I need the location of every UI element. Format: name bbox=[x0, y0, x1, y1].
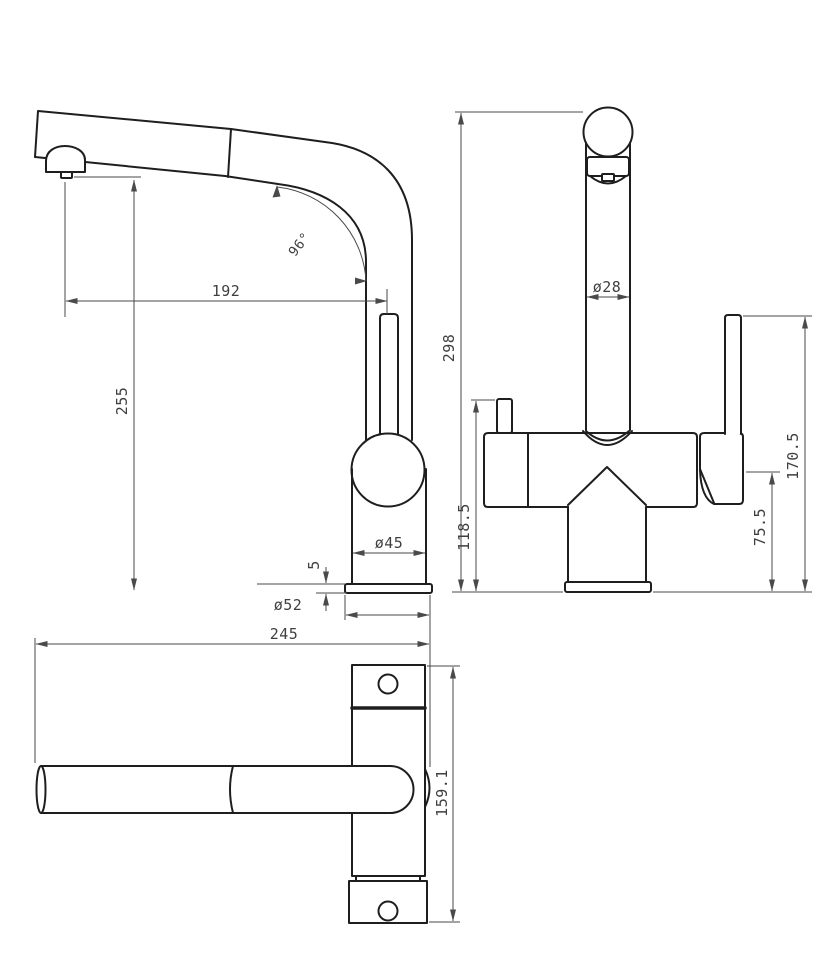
dim-overall-height: 298 bbox=[440, 334, 458, 363]
spout-outline-outer bbox=[35, 111, 412, 440]
dim-spout-tip-height: 255 bbox=[113, 387, 131, 416]
front-view-dimension-labels: 298 ø28 118.5 75.5 170.5 bbox=[440, 278, 802, 551]
cross-body bbox=[484, 433, 697, 507]
ball-joint bbox=[352, 434, 425, 507]
dim-column-diameter: ø28 bbox=[593, 278, 622, 296]
aux-lever bbox=[497, 399, 512, 433]
handle-lever-bar bbox=[725, 315, 741, 434]
front-view bbox=[484, 108, 743, 593]
front-base-plate bbox=[565, 582, 651, 592]
dim-base-thickness: 5 bbox=[305, 560, 323, 570]
dim-handle-top-height: 170.5 bbox=[784, 432, 802, 480]
dim-arc-96 bbox=[277, 187, 366, 281]
dim-handle-hub-height: 75.5 bbox=[751, 508, 769, 546]
aerator-dome bbox=[46, 146, 85, 172]
dim-body-diameter: ø45 bbox=[375, 534, 404, 552]
dim-overall-depth: 159.1 bbox=[433, 769, 451, 817]
aerator-nozzle bbox=[602, 174, 614, 181]
top-spout-tube bbox=[41, 766, 414, 813]
top-spout-tip-cap bbox=[37, 766, 46, 813]
dim-overall-reach: 245 bbox=[270, 625, 299, 643]
side-view bbox=[35, 111, 432, 593]
top-view bbox=[37, 665, 430, 923]
spout-split-line bbox=[228, 129, 231, 177]
dim-base-diameter: ø52 bbox=[274, 596, 303, 614]
side-view-dimension-labels: 255 192 96° ø45 5 ø52 bbox=[113, 229, 403, 614]
spray-head bbox=[584, 108, 633, 157]
dim-spout-reach: 192 bbox=[212, 282, 241, 300]
faucet-technical-drawing: 255 192 96° ø45 5 ø52 bbox=[0, 0, 824, 970]
side-base-plate bbox=[345, 584, 432, 593]
dim-spout-angle: 96° bbox=[286, 229, 315, 259]
drawing-page: 255 192 96° ø45 5 ø52 bbox=[0, 0, 824, 970]
side-handle-bar bbox=[380, 314, 398, 437]
aerator-tip bbox=[61, 172, 72, 178]
handle-hub bbox=[700, 433, 743, 504]
dim-body-top-height: 118.5 bbox=[455, 503, 473, 551]
